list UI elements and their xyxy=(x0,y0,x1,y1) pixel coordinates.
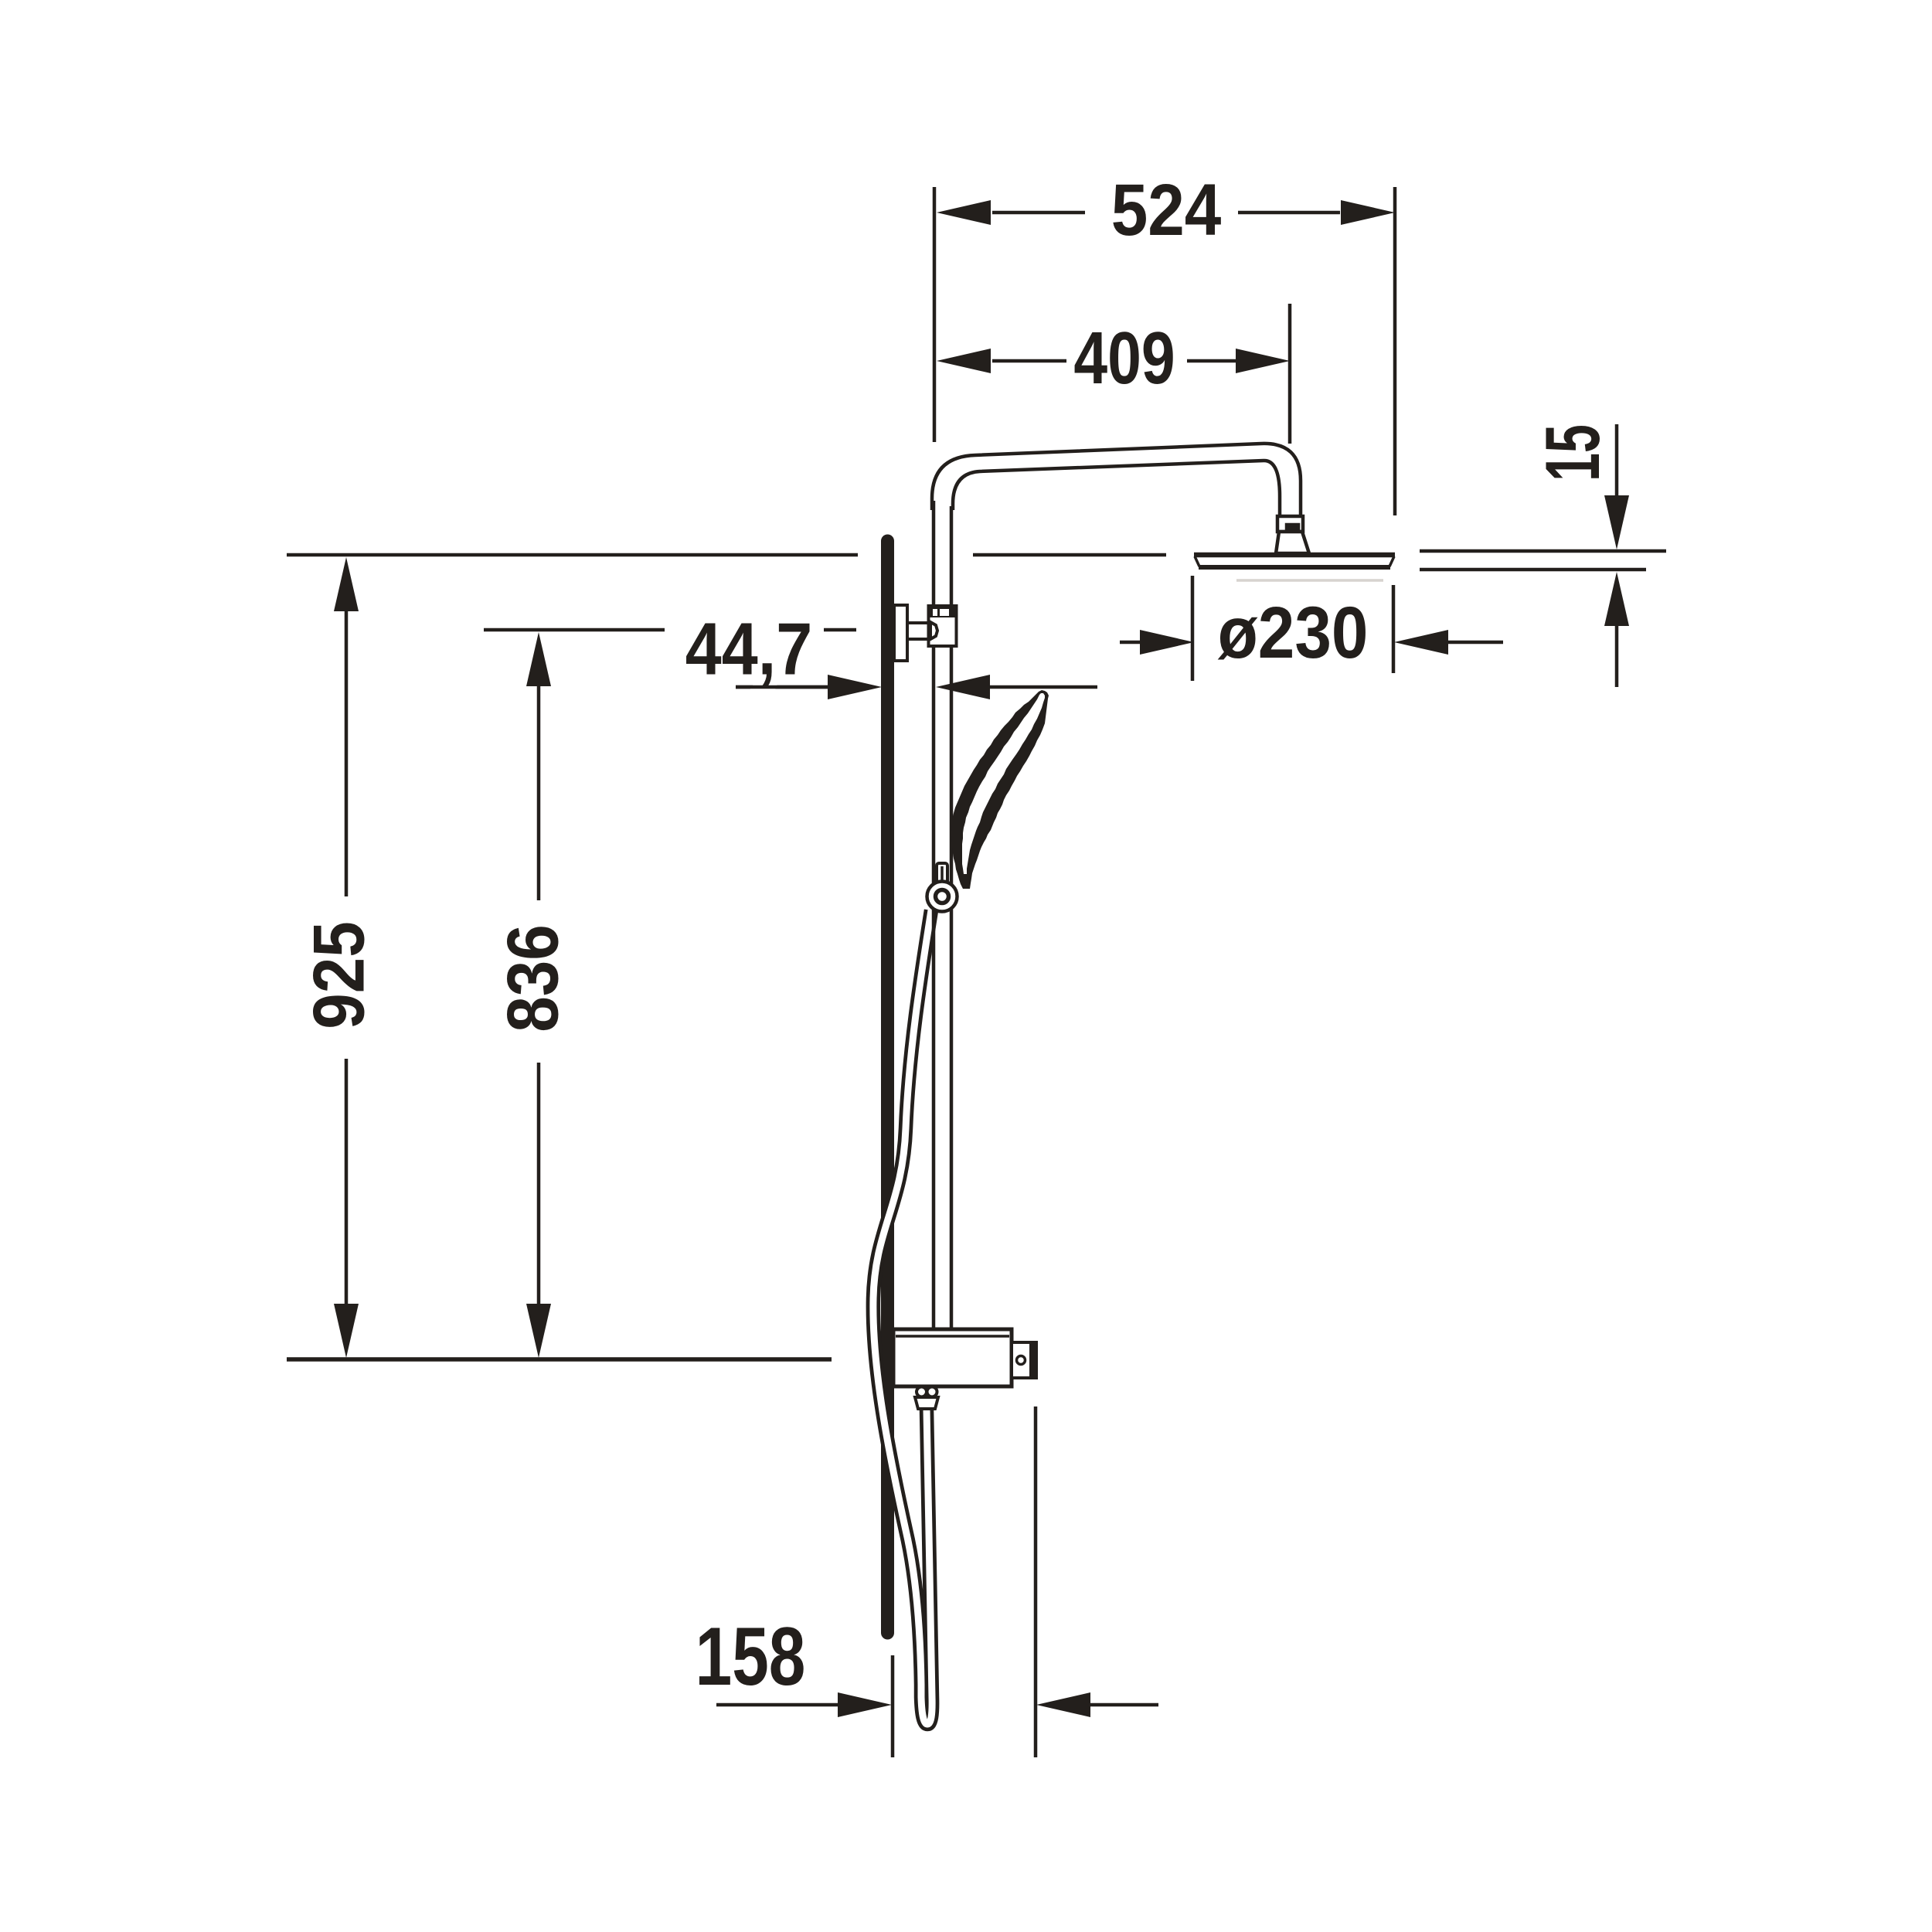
svg-text:925: 925 xyxy=(298,921,379,1029)
svg-text:409: 409 xyxy=(1073,316,1175,399)
svg-text:836: 836 xyxy=(492,924,573,1032)
svg-text:158: 158 xyxy=(696,1610,806,1702)
svg-text:44,7: 44,7 xyxy=(685,607,812,690)
svg-text:ø230: ø230 xyxy=(1218,592,1369,674)
svg-text:524: 524 xyxy=(1111,169,1222,251)
svg-text:15: 15 xyxy=(1530,424,1615,481)
